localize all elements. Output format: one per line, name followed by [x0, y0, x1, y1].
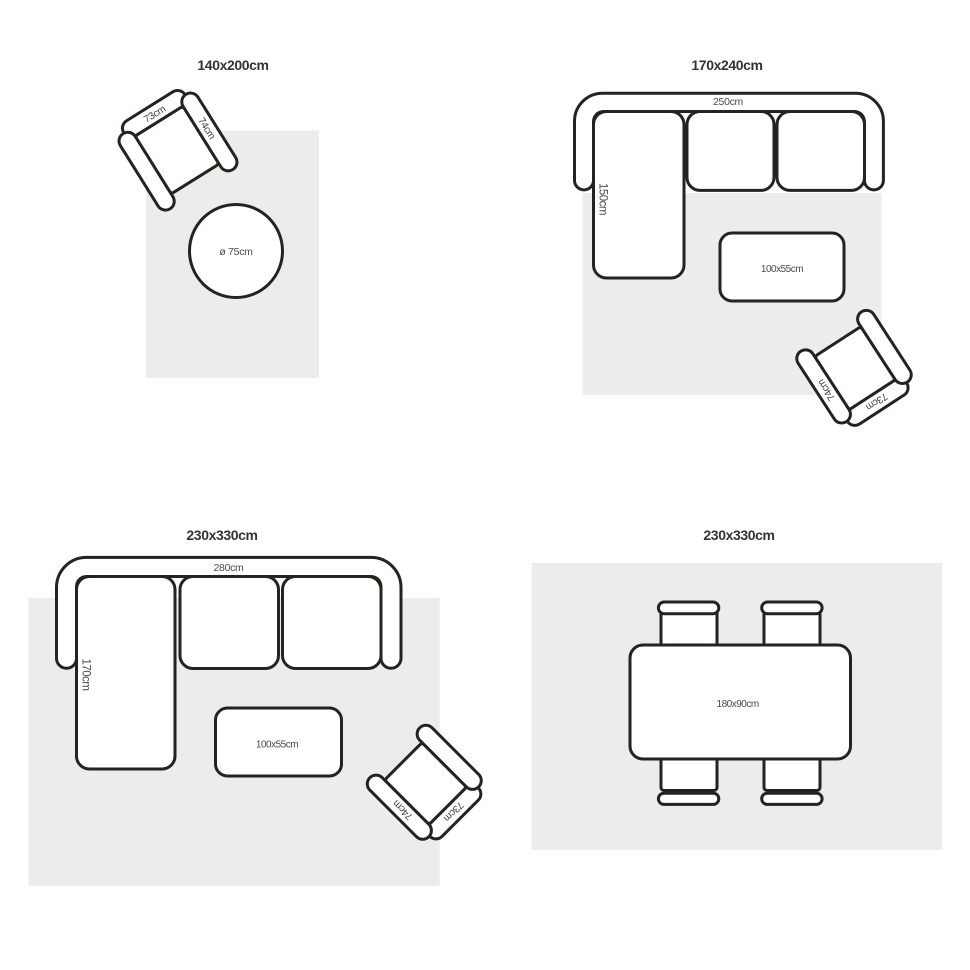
svg-text:100x55cm: 100x55cm — [256, 740, 298, 751]
svg-text:ø 75cm: ø 75cm — [219, 246, 253, 258]
svg-text:170cm: 170cm — [80, 658, 92, 690]
svg-text:140x200cm: 140x200cm — [197, 57, 268, 73]
svg-text:230x330cm: 230x330cm — [186, 527, 257, 543]
svg-text:250cm: 250cm — [713, 96, 744, 108]
svg-text:180x90cm: 180x90cm — [717, 699, 759, 710]
svg-text:170x240cm: 170x240cm — [691, 57, 762, 73]
svg-text:230x330cm: 230x330cm — [703, 527, 774, 543]
svg-text:280cm: 280cm — [213, 562, 244, 574]
svg-text:100x55cm: 100x55cm — [761, 264, 803, 275]
svg-text:150cm: 150cm — [597, 183, 609, 215]
